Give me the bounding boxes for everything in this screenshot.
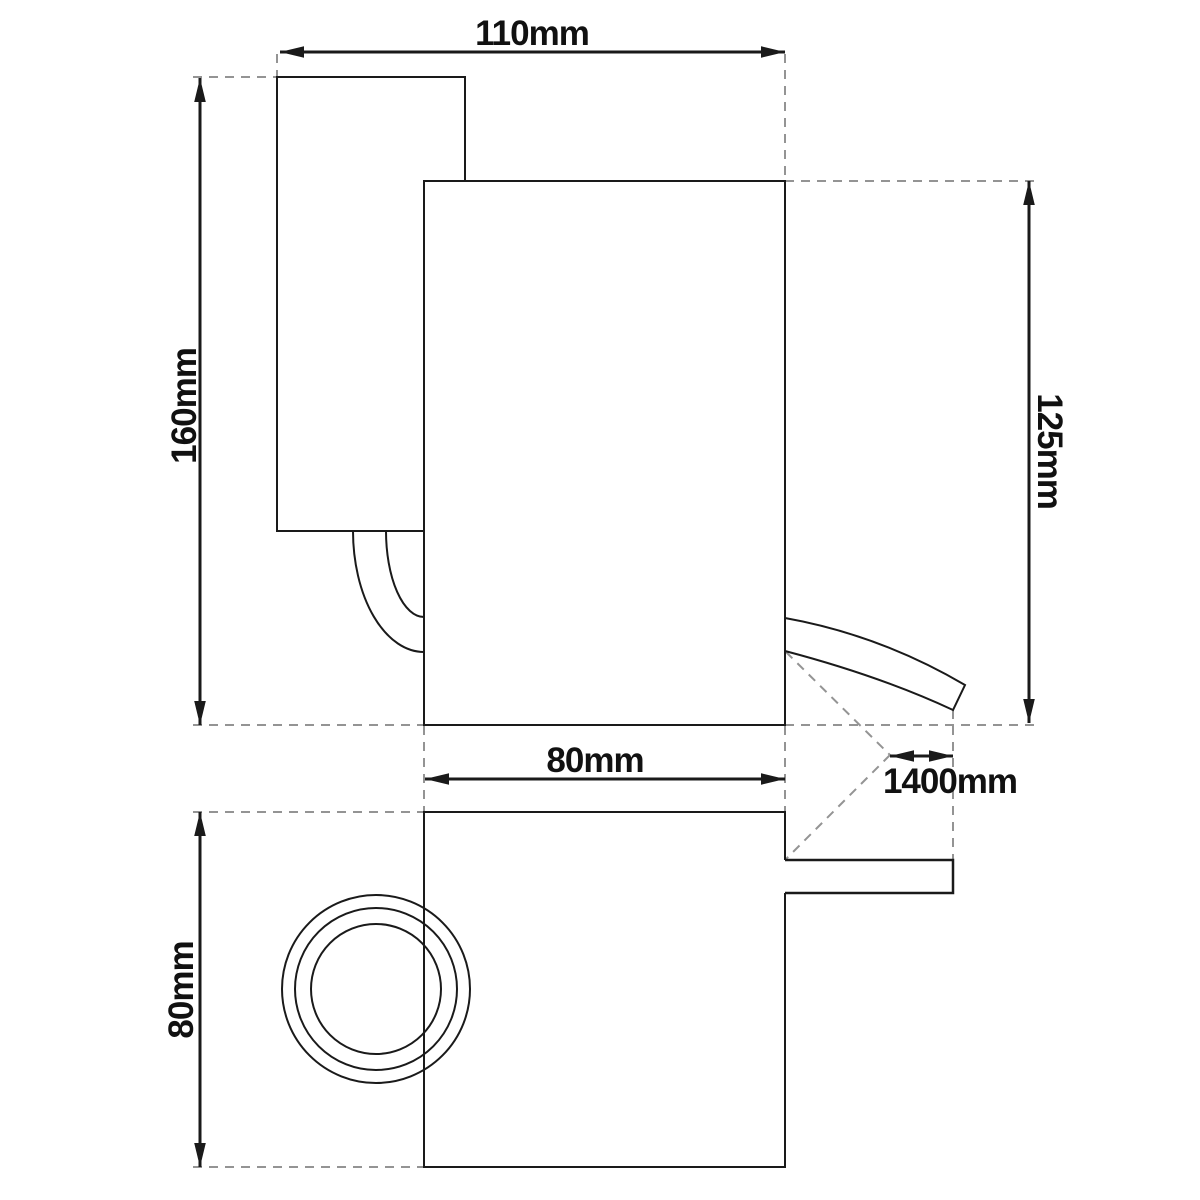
cable-loop-inner-curve (386, 531, 424, 617)
dimension-cable-length: 1400mm (883, 756, 1017, 801)
plan-cable-tab-outline (785, 860, 953, 893)
dimension-label-overall-height: 160mm (165, 348, 204, 464)
cable-projection-line-lower (785, 755, 890, 860)
dimension-label-footprint-depth: 80mm (162, 941, 201, 1038)
spotlight-dimension-drawing: 110mm 160mm 125mm 80mm 1400mm 80mm (0, 0, 1200, 1200)
dimension-head-height: 125mm (1029, 181, 1069, 723)
dimension-label-cable-length: 1400mm (883, 762, 1017, 801)
dimension-label-overall-width: 110mm (475, 14, 589, 53)
plan-view (282, 812, 953, 1167)
dimension-head-width: 80mm (425, 741, 785, 780)
dimension-overall-height: 160mm (165, 78, 204, 725)
technical-drawing-page: 110mm 160mm 125mm 80mm 1400mm 80mm (0, 0, 1200, 1200)
cable-projection-line-upper (786, 652, 890, 755)
wall-plate-outline (277, 77, 465, 531)
mount-circle-middle (295, 908, 457, 1070)
side-elevation-view (277, 77, 965, 725)
lamp-head-outline (424, 181, 785, 725)
dimensions: 110mm 160mm 125mm 80mm 1400mm 80mm (162, 14, 1069, 1167)
cable-loop-outer-curve (353, 531, 424, 652)
mount-circle-inner (311, 924, 441, 1054)
dimension-label-head-width: 80mm (546, 741, 643, 780)
cable-exit-outline (785, 618, 965, 710)
plan-body-outline (424, 812, 785, 1167)
dimension-label-head-height: 125mm (1030, 393, 1069, 509)
dimension-footprint-depth: 80mm (162, 812, 201, 1167)
dimension-overall-width: 110mm (280, 14, 785, 53)
extension-lines (193, 54, 1037, 1167)
